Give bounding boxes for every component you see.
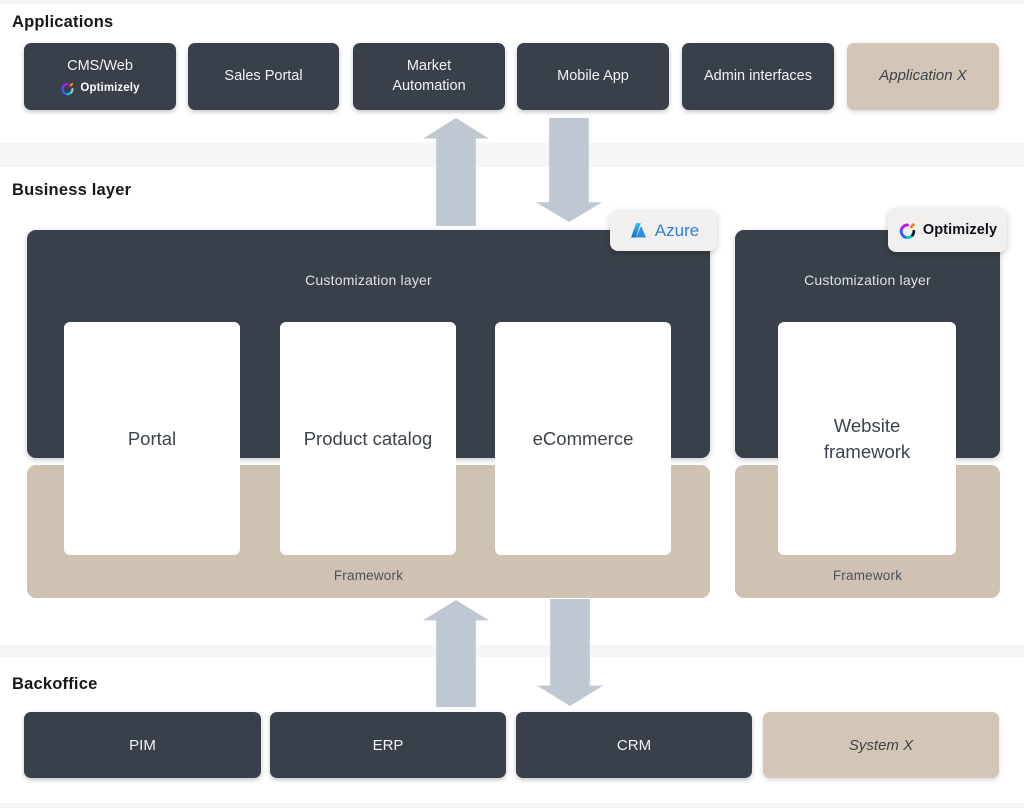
cms-web-content: CMS/Web Optimizely xyxy=(60,57,139,96)
framework-label-left: Framework xyxy=(27,568,710,583)
app-box-market-automation: Market Automation xyxy=(353,43,505,110)
applications-title: Applications xyxy=(12,13,113,32)
business-layer-title: Business layer xyxy=(12,181,131,200)
optimizely-logo: Optimizely xyxy=(60,81,139,97)
backoffice-box-pim: PIM xyxy=(24,712,261,778)
customization-layer-label-right: Customization layer xyxy=(735,272,1000,288)
app-box-admin-interfaces: Admin interfaces xyxy=(682,43,834,110)
backoffice-box-erp: ERP xyxy=(270,712,506,778)
backoffice-box-crm: CRM xyxy=(516,712,752,778)
backoffice-box-system-x: System X xyxy=(763,712,999,778)
card-portal: Portal xyxy=(64,322,240,555)
app-box-sales-portal: Sales Portal xyxy=(188,43,339,110)
azure-logo-icon xyxy=(628,220,649,241)
cms-web-label: CMS/Web xyxy=(67,57,133,77)
backoffice-title: Backoffice xyxy=(12,675,97,694)
app-box-cms-web: CMS/Web Optimizely xyxy=(24,43,176,110)
card-ecommerce: eCommerce xyxy=(495,322,671,555)
customization-layer-label-left: Customization layer xyxy=(27,272,710,288)
app-box-application-x: Application X xyxy=(847,43,999,110)
optimizely-wordmark: Optimizely xyxy=(80,81,139,97)
app-box-mobile-app: Mobile App xyxy=(517,43,669,110)
optimizely-mark-icon xyxy=(898,221,917,240)
card-product-catalog: Product catalog xyxy=(280,322,456,555)
azure-badge: Azure xyxy=(610,210,717,251)
architecture-diagram: Applications Business layer Backoffice C… xyxy=(0,0,1024,808)
azure-badge-label: Azure xyxy=(655,221,699,241)
optimizely-badge-label: Optimizely xyxy=(923,222,997,238)
framework-label-right: Framework xyxy=(735,568,1000,583)
optimizely-mark-icon xyxy=(60,81,75,96)
card-website-framework: Website framework xyxy=(778,322,956,555)
optimizely-badge: Optimizely xyxy=(888,208,1007,252)
